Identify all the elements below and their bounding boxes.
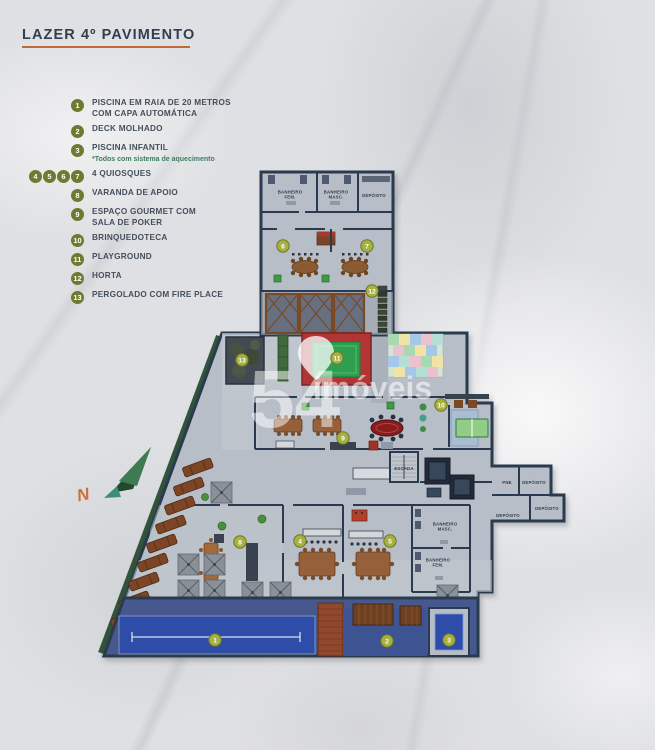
ping-pong-table	[456, 419, 488, 437]
cabinet	[317, 232, 335, 245]
plan-marker-label: 6	[281, 243, 285, 250]
recycle-bin	[274, 275, 281, 282]
recycle-bin	[322, 275, 329, 282]
brick-planter	[318, 603, 343, 656]
plan-marker-label: 10	[437, 402, 445, 409]
compass-north-label: N	[75, 484, 92, 505]
plan-marker-label: 5	[388, 538, 392, 545]
room-label: DEPÓSITO	[522, 480, 546, 485]
plan-marker-label: 9	[341, 435, 345, 442]
room-label: DEPÓSITO	[496, 513, 520, 518]
watermark-name: imóveis	[313, 370, 432, 406]
plan-marker-label: 8	[238, 539, 242, 546]
bar-counter	[246, 543, 258, 581]
floor-plan: N BANHEIROFEM.BANHEIROMASC.DEPÓSITOESCAD…	[0, 0, 655, 750]
wet-deck	[343, 604, 427, 656]
compass: N	[75, 447, 151, 505]
plan-marker-label: 7	[365, 243, 369, 250]
room-label: DEPÓSITO	[535, 506, 559, 511]
kids-pool	[429, 608, 469, 656]
plan-marker-label: 12	[368, 288, 376, 295]
plan-marker-label: 11	[333, 355, 340, 362]
plan-marker-label: 2	[385, 638, 389, 645]
room-label: DEPÓSITO	[362, 193, 386, 198]
plan-marker-label: 1	[213, 637, 217, 644]
pool-strip	[104, 598, 478, 656]
pergola-deck	[266, 294, 364, 333]
room-label: ESCADA	[394, 466, 413, 471]
plan-marker-label: 4	[298, 538, 302, 545]
room-label: PNE	[502, 480, 511, 485]
storage-shelf	[362, 176, 390, 182]
plan-marker-label: 13	[238, 357, 246, 364]
canvas: LAZER 4º PAVIMENTO 1 PISCINA EM RAIA DE …	[0, 0, 655, 750]
plan-marker-label: 3	[447, 637, 451, 644]
